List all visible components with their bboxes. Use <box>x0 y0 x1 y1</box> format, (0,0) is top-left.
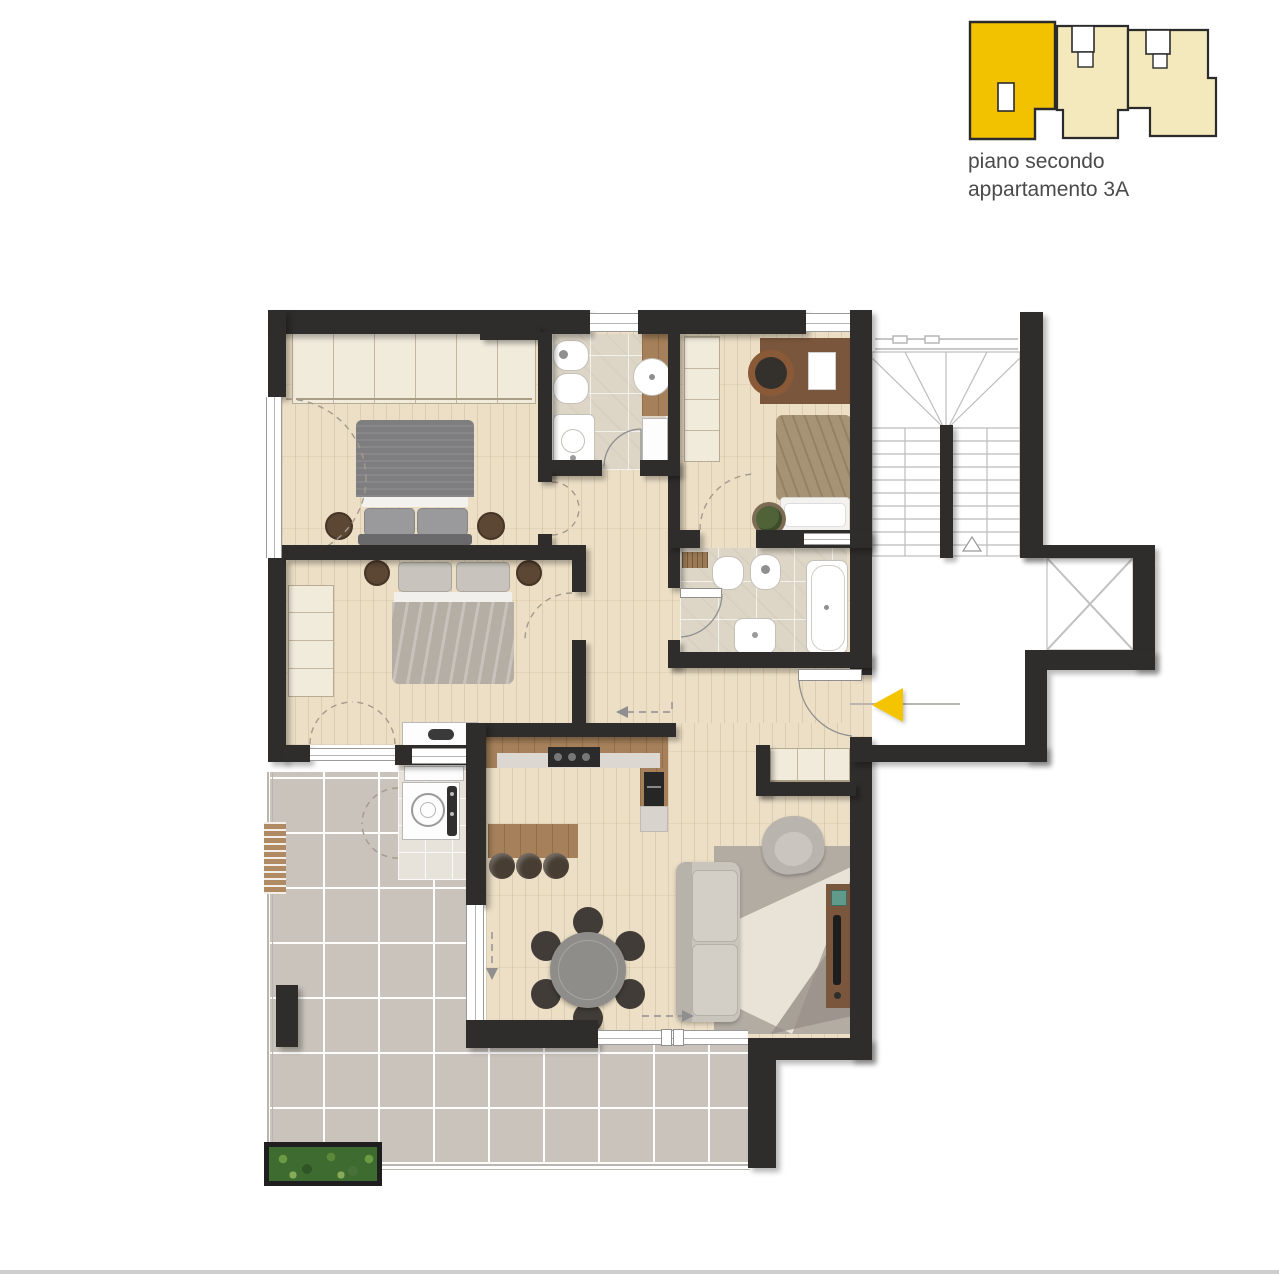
wardrobe <box>292 332 536 404</box>
elevator-cross <box>1047 558 1133 650</box>
nightstand <box>477 512 505 540</box>
sheet-bottom-edge <box>0 1270 1279 1274</box>
single-bed <box>776 415 852 545</box>
bar-stool <box>489 853 515 879</box>
french-window <box>266 397 282 558</box>
entry-door-leaf <box>798 669 862 681</box>
window <box>590 313 638 332</box>
wall <box>1020 545 1155 558</box>
bidet <box>712 556 744 590</box>
wall <box>748 1038 872 1060</box>
bathtub <box>806 560 848 654</box>
washbasin <box>734 618 776 654</box>
laundry-shelf <box>404 766 464 781</box>
desk-paper <box>808 352 836 390</box>
oven-column <box>644 772 664 806</box>
vanity-cabinet <box>642 418 668 466</box>
wall <box>1020 312 1043 558</box>
wall <box>668 548 680 588</box>
wall <box>282 545 586 560</box>
wall <box>282 745 310 762</box>
wall <box>538 534 552 545</box>
bar-stool <box>543 853 569 879</box>
wall <box>268 310 286 397</box>
cooktop <box>548 747 600 767</box>
bath-mat <box>682 552 708 568</box>
nightstand <box>516 560 542 586</box>
entry-arrow-icon <box>872 688 903 722</box>
wardrobe <box>684 336 720 462</box>
keyplan-unit-3 <box>1128 30 1216 136</box>
kitchen-base-cabinet <box>640 806 668 832</box>
headboard <box>358 534 472 545</box>
wall <box>480 326 540 340</box>
wall <box>466 723 486 905</box>
sliding-window-handle <box>673 1029 684 1046</box>
washing-machine <box>402 782 460 840</box>
bathroom-door-leaf <box>680 588 722 598</box>
toilet <box>553 373 589 404</box>
wall <box>268 558 286 762</box>
wood-floor-entry-gap <box>850 673 872 737</box>
wall <box>538 470 552 482</box>
wall <box>572 560 586 592</box>
nightstand <box>364 560 390 586</box>
dresser-handle <box>428 729 454 740</box>
caption-floor: piano secondo <box>968 148 1129 176</box>
pillow <box>398 562 452 592</box>
wall <box>668 332 680 548</box>
bidet <box>553 340 589 371</box>
entry-marker-line <box>850 703 960 705</box>
built-in-closet <box>770 748 850 784</box>
stair-spine-wall <box>940 425 953 558</box>
wall <box>538 332 552 476</box>
wall <box>640 460 680 476</box>
round-basin <box>633 358 671 396</box>
terrace-pier <box>276 985 298 1047</box>
keyplan <box>960 16 1222 148</box>
wall <box>850 745 1047 762</box>
floor-plan-sheet: piano secondo appartamento 3A <box>0 0 1279 1280</box>
window <box>806 313 850 332</box>
bar-stool <box>516 853 542 879</box>
trellis <box>264 822 286 894</box>
wardrobe <box>288 585 334 697</box>
pillow <box>456 562 510 592</box>
tv-sideboard <box>826 884 852 1008</box>
nightstand <box>325 512 353 540</box>
wall <box>1025 650 1155 670</box>
sofa <box>676 862 740 1022</box>
desk-chair <box>748 350 794 396</box>
caption: piano secondo appartamento 3A <box>968 148 1129 203</box>
window <box>412 748 466 764</box>
bathroom-window <box>804 533 850 545</box>
pillow <box>784 503 846 527</box>
pillow <box>417 508 468 536</box>
stair-direction-triangle <box>963 537 981 551</box>
wall <box>572 640 586 726</box>
round-dining-table <box>550 932 626 1008</box>
wall <box>478 723 676 737</box>
double-bed <box>392 558 514 684</box>
sliding-window-handle <box>661 1029 672 1046</box>
wall <box>668 652 872 668</box>
double-bed <box>356 420 474 545</box>
pillow <box>364 508 415 536</box>
tv-screen <box>833 915 841 985</box>
wall <box>668 530 700 548</box>
wall <box>756 782 856 796</box>
wardrobe-rail <box>296 398 532 400</box>
wall <box>268 310 590 334</box>
wall <box>638 310 806 334</box>
terrace-glass-door <box>466 905 484 1020</box>
stair-window <box>875 336 1018 349</box>
toilet <box>750 554 781 590</box>
caption-apartment: appartamento 3A <box>968 176 1129 204</box>
wall <box>850 310 872 675</box>
french-door-terrace <box>310 748 395 761</box>
planter <box>264 1142 382 1186</box>
keyplan-unit-highlighted <box>970 22 1055 139</box>
wall <box>466 1020 598 1048</box>
wall <box>748 1060 776 1168</box>
